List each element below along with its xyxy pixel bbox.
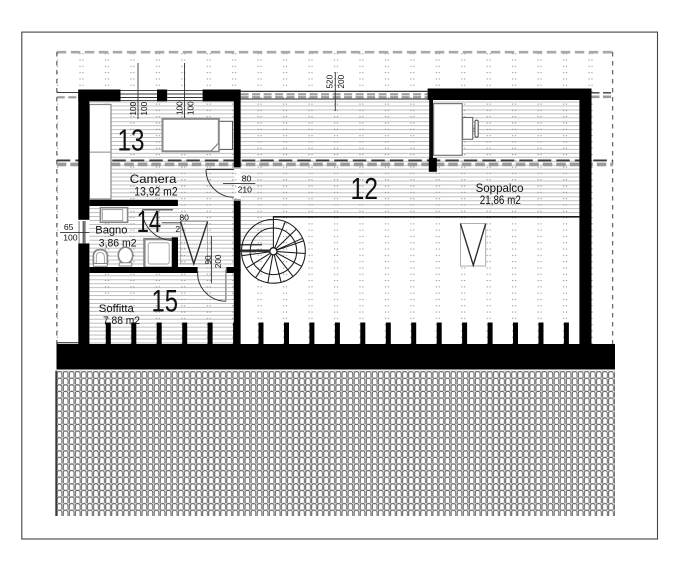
svg-text:Soffitta: Soffitta	[99, 303, 135, 315]
svg-text:90: 90	[204, 255, 213, 265]
svg-text:21,86 m2: 21,86 m2	[480, 193, 521, 207]
svg-text:210: 210	[238, 185, 253, 195]
svg-text:80: 80	[242, 174, 252, 184]
svg-text:12: 12	[351, 172, 379, 206]
svg-text:7,88 m2: 7,88 m2	[103, 315, 140, 327]
svg-text:14: 14	[137, 205, 162, 239]
svg-text:100: 100	[176, 101, 185, 115]
svg-text:80: 80	[179, 213, 189, 223]
svg-text:100: 100	[186, 101, 195, 115]
svg-text:15: 15	[152, 283, 179, 319]
svg-text:65: 65	[64, 222, 74, 232]
svg-text:3,86 m2: 3,86 m2	[99, 237, 137, 249]
svg-text:13,92 m2: 13,92 m2	[134, 184, 177, 198]
svg-text:Bagno: Bagno	[95, 224, 127, 236]
svg-text:100: 100	[140, 101, 149, 115]
svg-text:100: 100	[63, 233, 78, 243]
svg-text:13: 13	[118, 124, 145, 158]
svg-text:200: 200	[337, 74, 346, 88]
svg-text:100: 100	[129, 101, 138, 115]
svg-text:200: 200	[214, 254, 223, 268]
svg-text:520: 520	[325, 74, 334, 88]
svg-text:2: 2	[175, 224, 180, 234]
